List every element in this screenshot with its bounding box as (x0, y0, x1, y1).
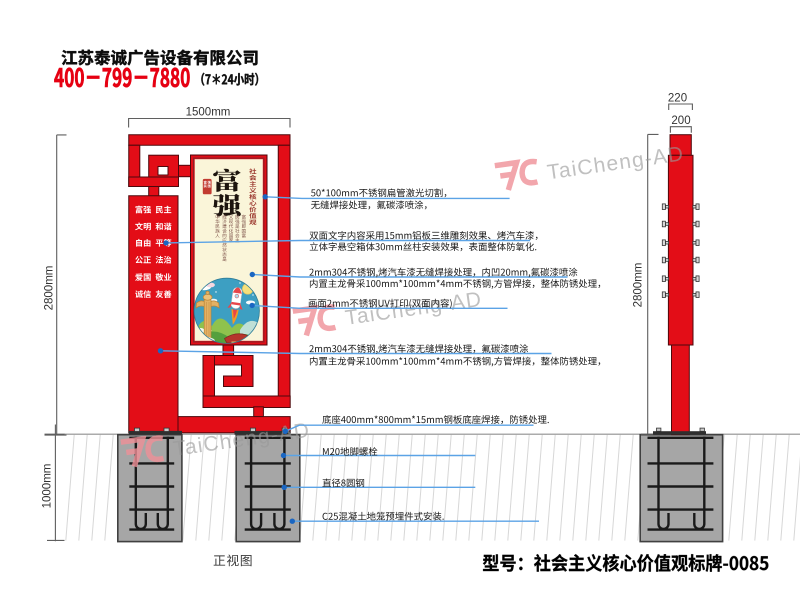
svg-text:1000mm: 1000mm (42, 464, 54, 509)
svg-text:1500mm: 1500mm (186, 107, 231, 119)
svg-text:2800mm: 2800mm (633, 263, 645, 308)
svg-text:TaiCheng-AD: TaiCheng-AD (546, 142, 686, 184)
svg-text:2800mm: 2800mm (44, 266, 56, 311)
svg-text:200: 200 (671, 115, 690, 127)
svg-text:220: 220 (668, 93, 687, 105)
